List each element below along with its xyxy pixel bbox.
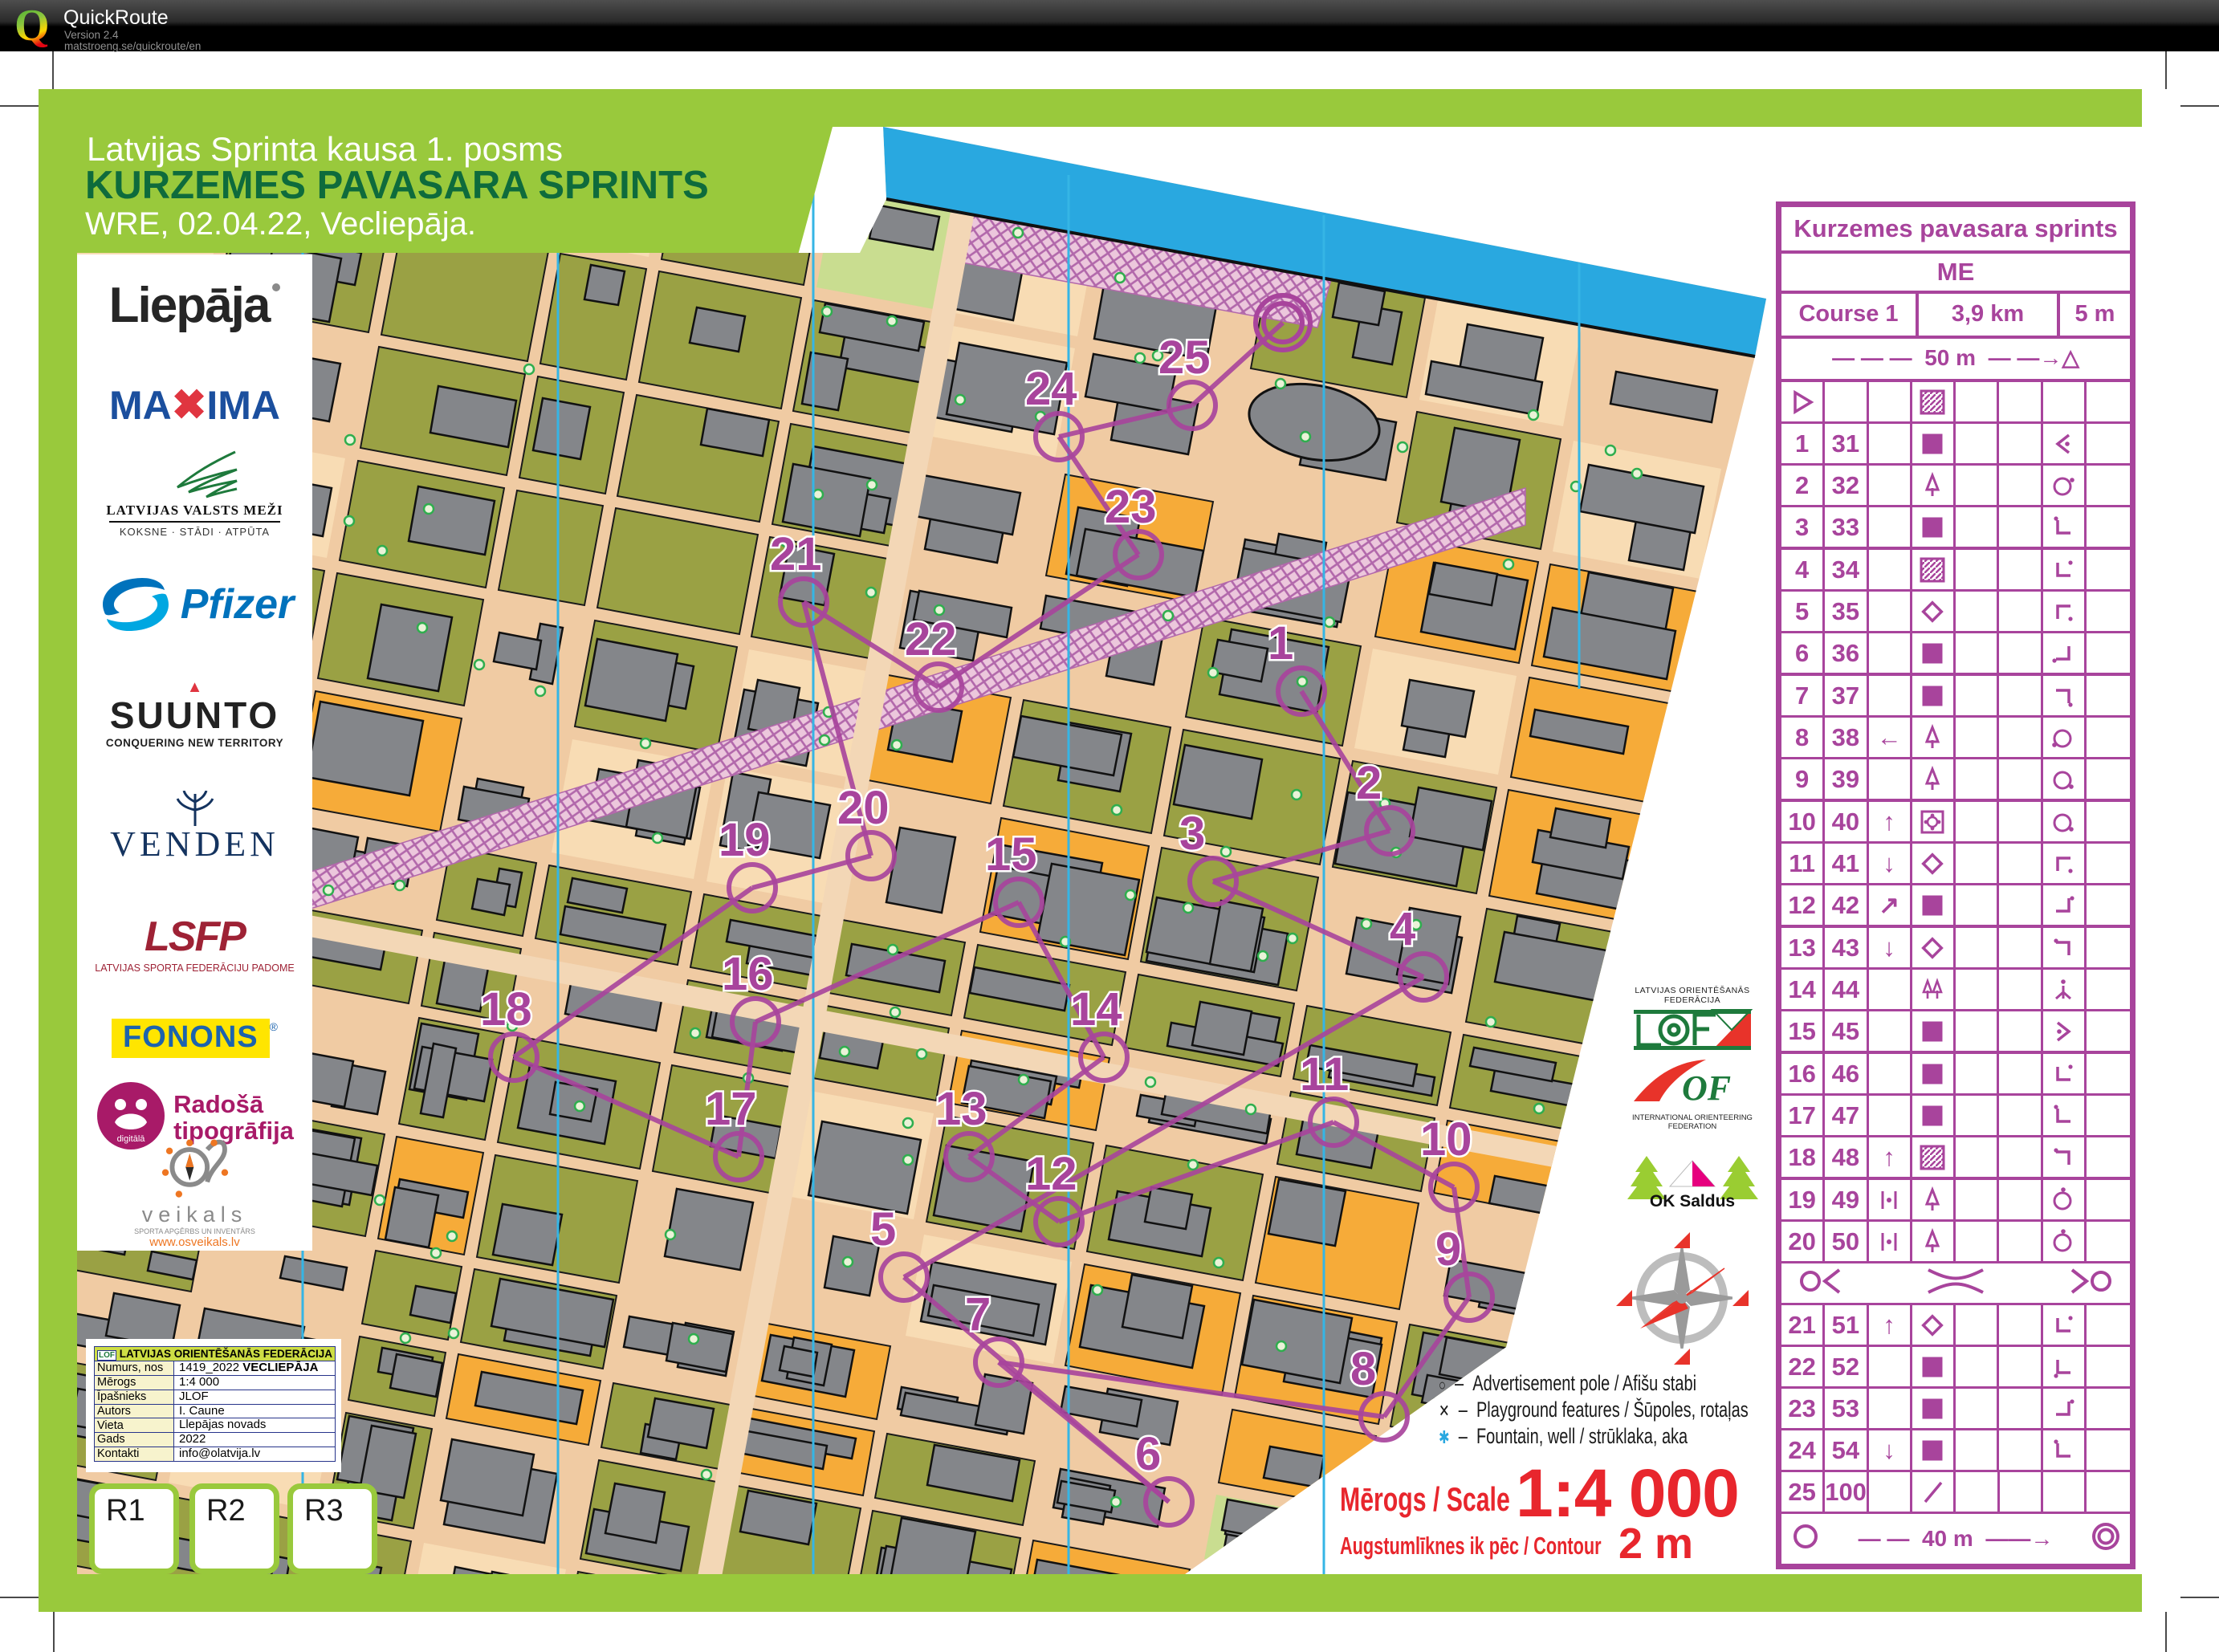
svg-text:15: 15 (985, 828, 1037, 881)
svg-text:7: 7 (965, 1288, 991, 1341)
svg-text:10: 10 (1420, 1113, 1472, 1166)
svg-text:2: 2 (1356, 757, 1382, 809)
svg-text:21: 21 (770, 528, 822, 580)
svg-text:20: 20 (837, 782, 890, 834)
svg-text:4: 4 (1390, 903, 1415, 955)
svg-text:3: 3 (1179, 808, 1205, 860)
svg-text:19: 19 (719, 814, 771, 866)
svg-text:18: 18 (480, 983, 532, 1036)
svg-text:12: 12 (1025, 1148, 1077, 1200)
svg-text:Q: Q (14, 3, 50, 48)
svg-text:23: 23 (1105, 481, 1157, 533)
svg-text:5: 5 (870, 1203, 896, 1255)
svg-text:16: 16 (722, 948, 774, 1000)
svg-text:1: 1 (1268, 617, 1293, 669)
svg-text:22: 22 (905, 613, 957, 665)
svg-text:24: 24 (1025, 363, 1077, 415)
svg-text:11: 11 (1300, 1048, 1349, 1101)
svg-text:9: 9 (1435, 1223, 1461, 1276)
svg-text:14: 14 (1070, 983, 1122, 1036)
svg-text:17: 17 (705, 1083, 757, 1135)
svg-text:OF: OF (1682, 1068, 1731, 1108)
svg-text:6: 6 (1135, 1428, 1161, 1480)
svg-text:8: 8 (1350, 1343, 1376, 1395)
svg-text:13: 13 (935, 1083, 987, 1135)
svg-text:25: 25 (1158, 332, 1211, 384)
